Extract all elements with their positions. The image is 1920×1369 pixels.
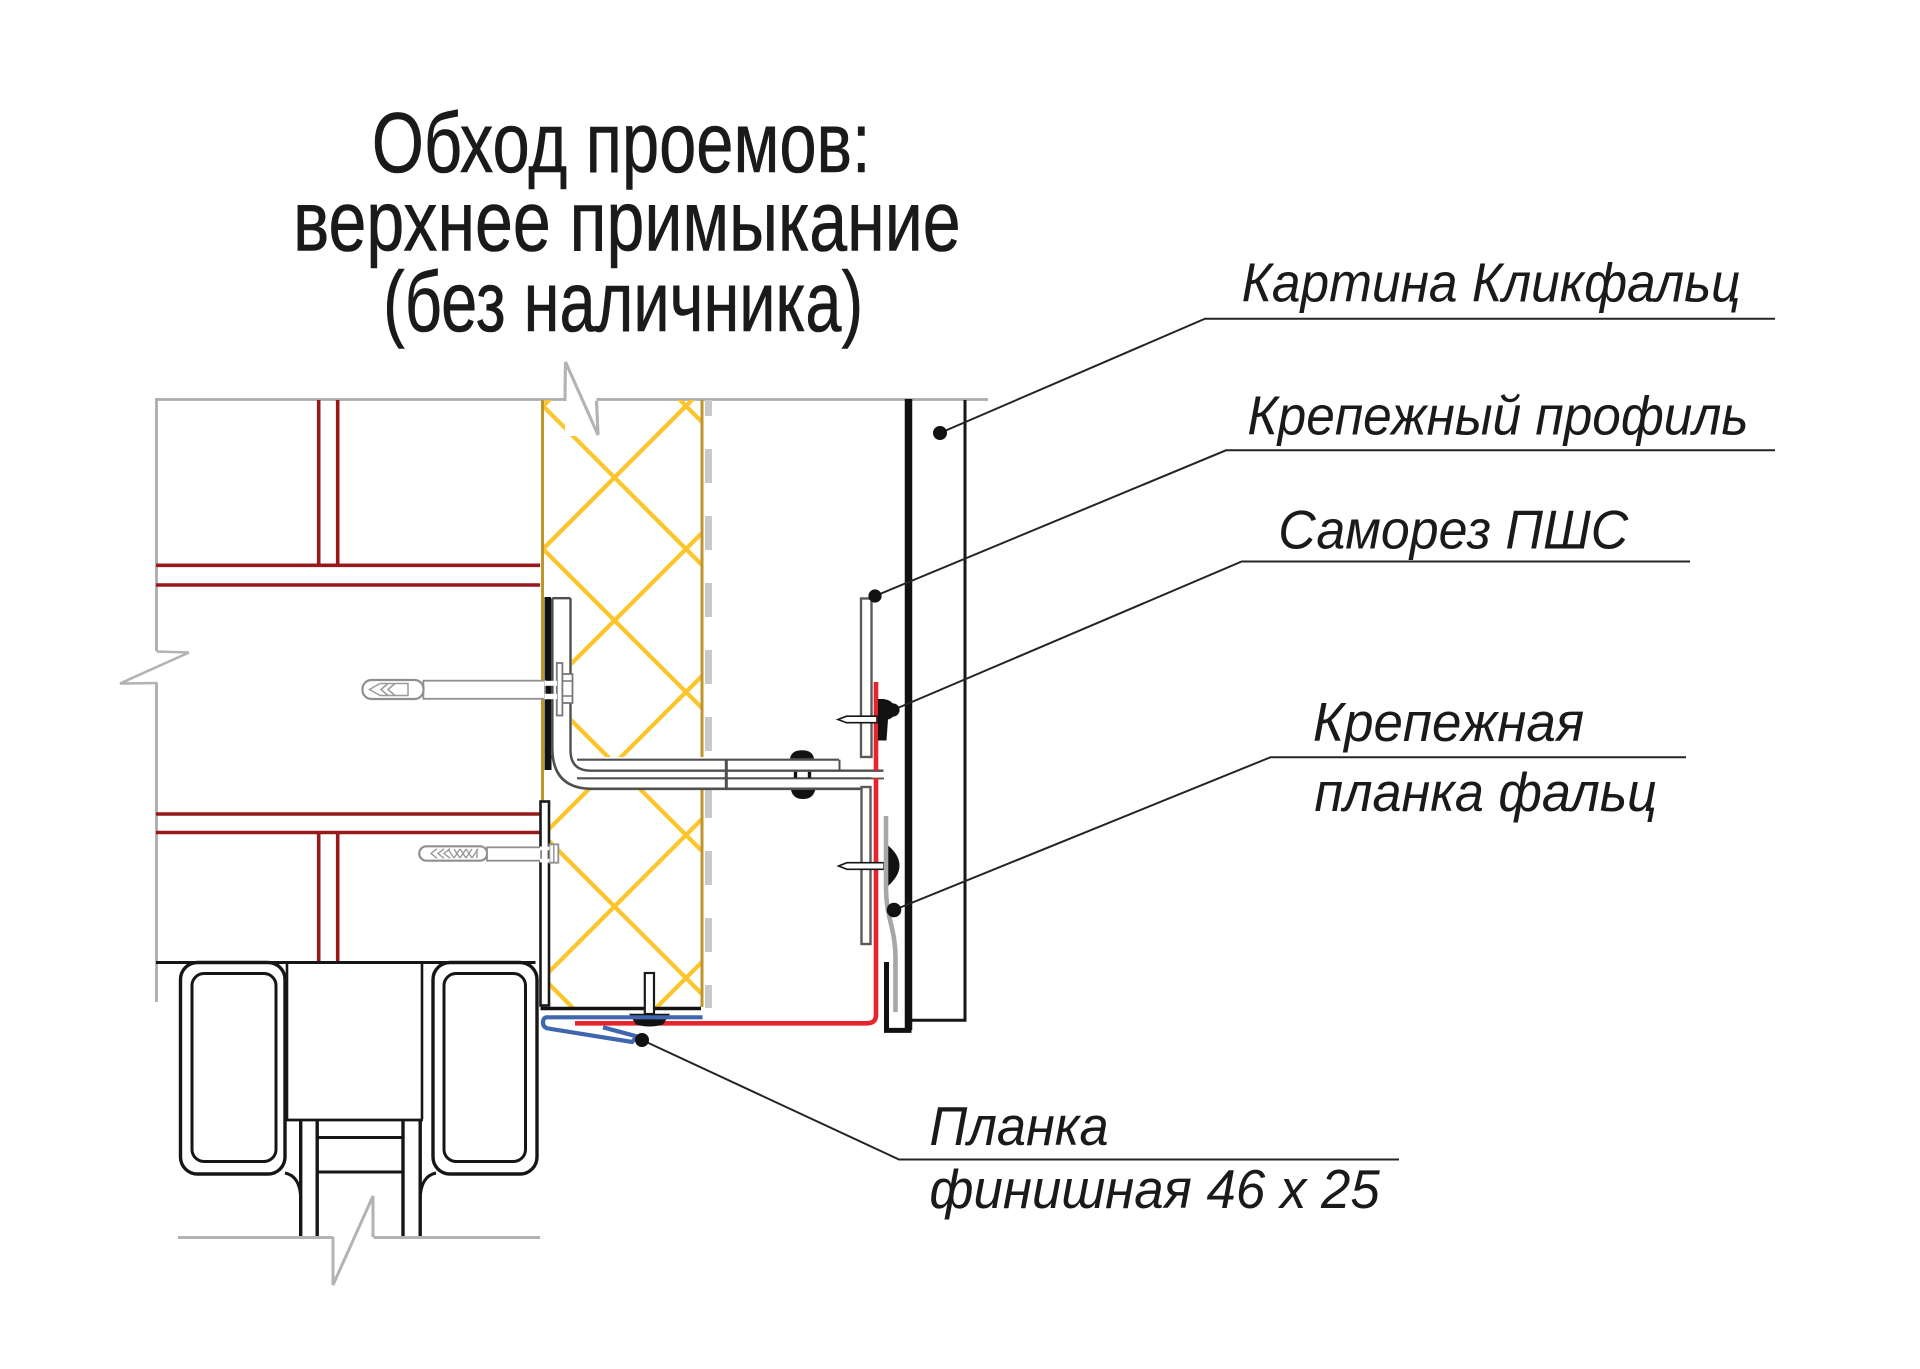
- svg-text:Картина Кликфальц: Картина Кликфальц: [1242, 252, 1741, 314]
- svg-text:Крепежный профиль: Крепежный профиль: [1247, 385, 1748, 447]
- svg-text:(без наличника): (без наличника): [383, 255, 863, 350]
- svg-text:Планка: Планка: [929, 1095, 1108, 1157]
- svg-text:Саморез ПШС: Саморез ПШС: [1278, 498, 1629, 560]
- svg-text:планка фальц: планка фальц: [1314, 761, 1657, 823]
- svg-text:Крепежная: Крепежная: [1313, 691, 1584, 753]
- svg-text:финишная 46 х 25: финишная 46 х 25: [929, 1158, 1380, 1220]
